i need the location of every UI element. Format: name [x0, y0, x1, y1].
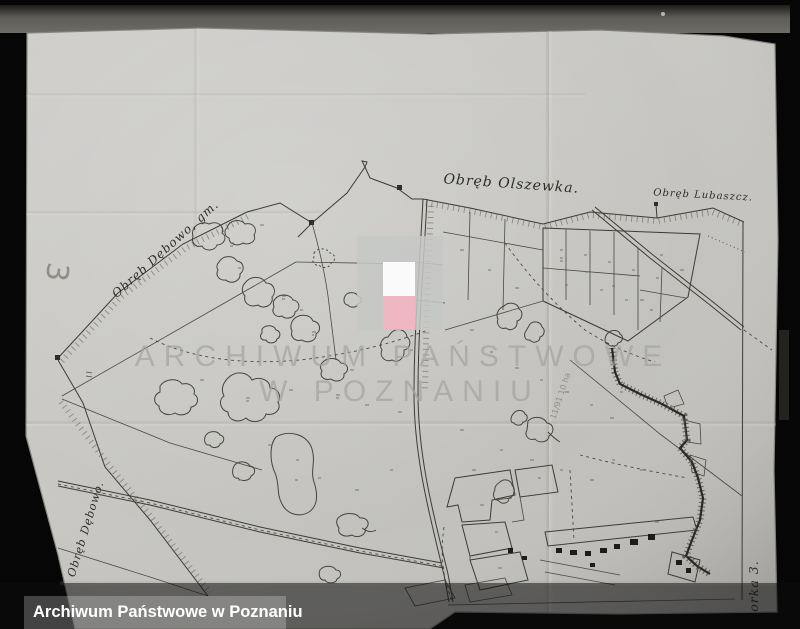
watermark-line1: ARCHIWUM PAŃSTWOWE — [135, 340, 671, 373]
archive-bar: Archiwum Państwowe w Poznaniu — [0, 583, 800, 629]
map-svg: Obręb Olszewka. Obręb Lubaszcz. Obręb Dę… — [0, 0, 800, 629]
watermark-line2: W POZNANIU — [259, 375, 541, 408]
logo-flag-white — [383, 262, 415, 296]
film-top-band — [0, 5, 790, 33]
archive-logo — [357, 236, 443, 330]
archival-map-scan: Obręb Olszewka. Obręb Lubaszcz. Obręb Dę… — [0, 0, 800, 629]
archive-bar-highlight: Archiwum Państwowe w Poznaniu — [24, 596, 286, 629]
dust-speck — [661, 12, 665, 16]
logo-flag-pink — [383, 296, 415, 329]
archive-bar-label: Archiwum Państwowe w Poznaniu — [24, 603, 303, 622]
film-edge-smudge — [779, 330, 789, 420]
